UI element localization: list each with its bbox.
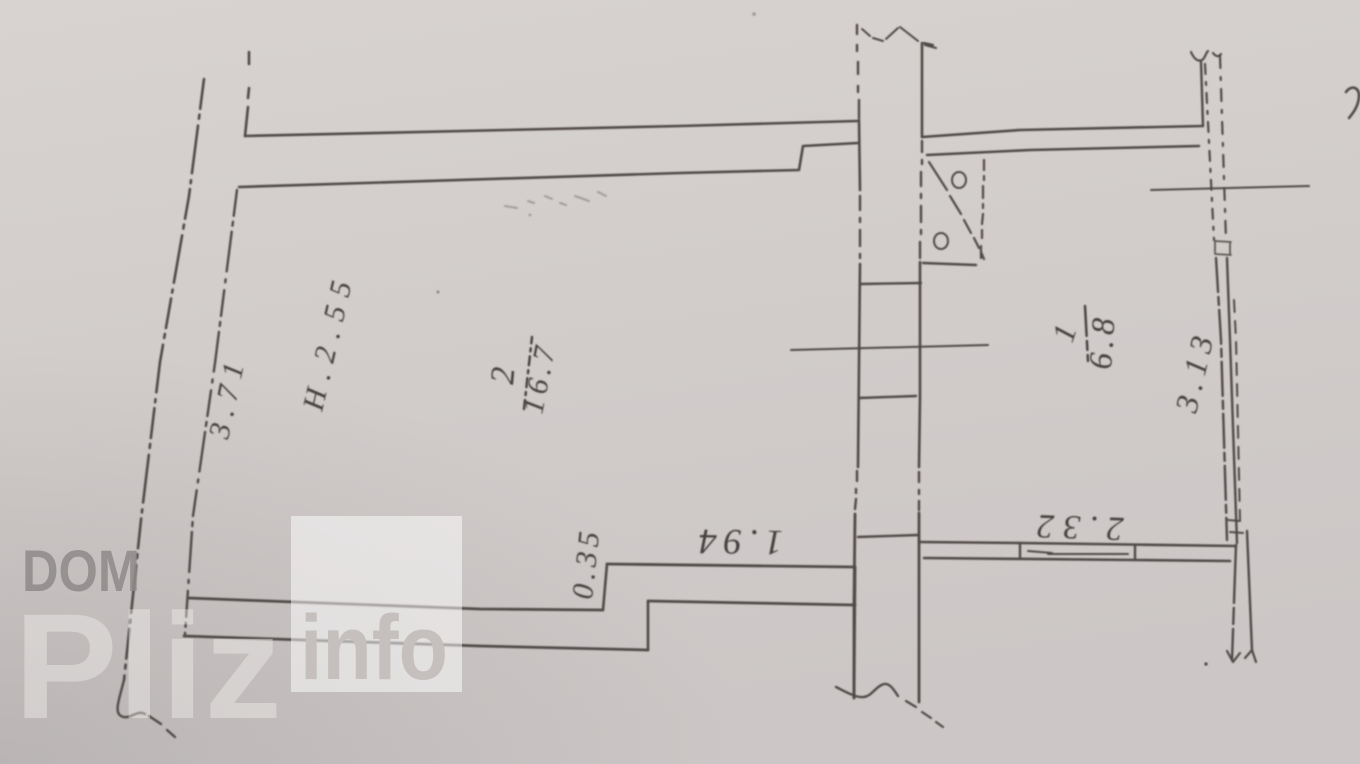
svg-text:2: 2 [484, 366, 522, 386]
svg-text:1.94: 1.94 [691, 521, 783, 563]
svg-text:6.8: 6.8 [1083, 312, 1123, 371]
svg-text:info: info [300, 597, 448, 699]
svg-text:2.32: 2.32 [1028, 507, 1125, 547]
svg-text:Pliz: Pliz [14, 582, 282, 750]
